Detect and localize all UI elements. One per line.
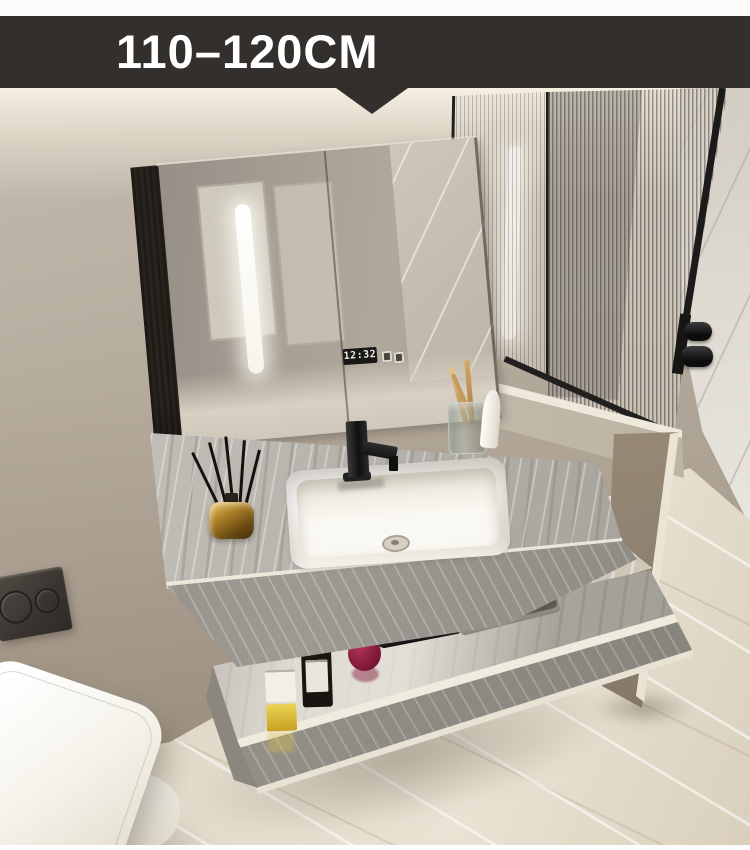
mirror-reflection-window (196, 180, 277, 341)
mirror-cabinet (130, 137, 501, 448)
flush-button-small (33, 586, 62, 615)
mirror-defog-icon (382, 351, 393, 363)
size-banner-label: 110–120CM (116, 16, 378, 88)
basin-drain-center (391, 540, 399, 545)
black-bottle-label (305, 660, 328, 693)
bottom-white-strip (0, 845, 750, 850)
yellow-bottle-liquid (266, 703, 297, 731)
yellow-bottle-label (265, 669, 296, 702)
ceramic-basin (285, 456, 511, 569)
banner-pointer-notch (336, 88, 408, 114)
yellow-bottle (264, 665, 298, 732)
black-bottle (301, 649, 333, 707)
product-screenshot: 12:32 (0, 0, 750, 850)
top-white-strip (0, 0, 750, 16)
diffuser-gold-jar (209, 502, 254, 539)
faucet-spout-tip (389, 456, 398, 471)
shower-mixer-knob-bottom (681, 346, 713, 367)
toilet-flush-plate (0, 566, 73, 642)
mirror-face (158, 137, 501, 446)
flush-button-large (0, 588, 35, 626)
shower-mixer-knob-top (684, 322, 712, 341)
mirror-light-icon (394, 352, 405, 364)
mirror-clock-display: 12:32 (342, 347, 377, 365)
yellow-bottle-reflection (268, 732, 294, 752)
